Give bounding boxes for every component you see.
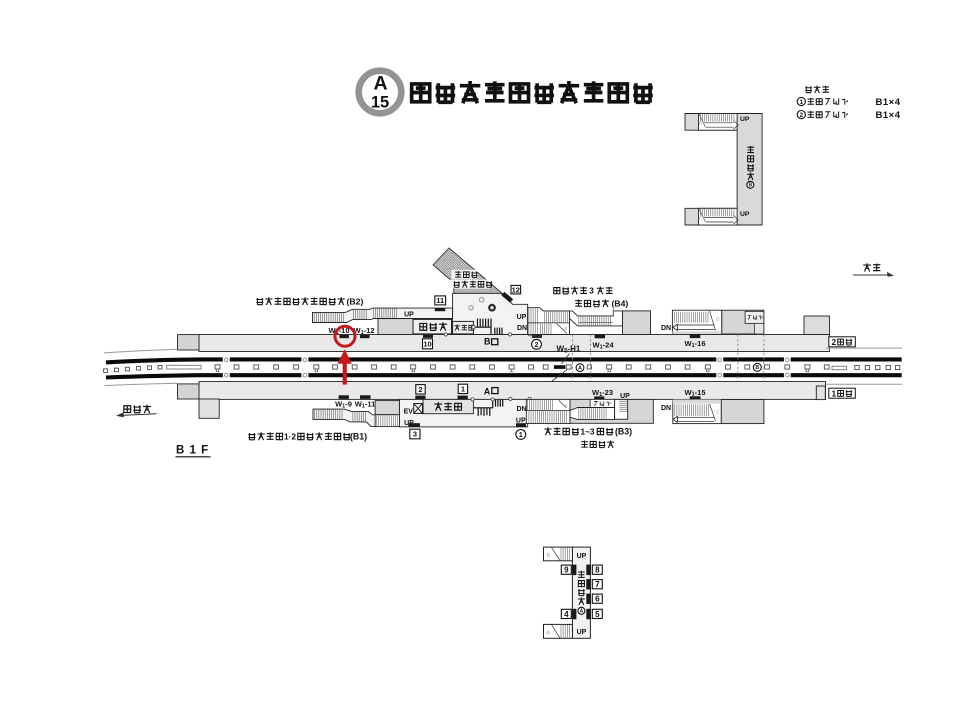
svg-text:W1-16: W1-16 — [685, 339, 706, 349]
svg-text:W1-11: W1-11 — [355, 400, 376, 410]
svg-text:A: A — [565, 403, 568, 408]
svg-text:15: 15 — [371, 94, 389, 112]
svg-text:EV: EV — [404, 409, 414, 416]
svg-text:A: A — [578, 365, 582, 371]
svg-text:A: A — [484, 386, 491, 396]
svg-text:4: 4 — [564, 610, 569, 619]
svg-text:DN: DN — [517, 325, 527, 332]
svg-text:3: 3 — [413, 430, 417, 439]
svg-text:W1-23: W1-23 — [592, 388, 613, 398]
svg-text:1: 1 — [461, 385, 465, 394]
svg-text:DN: DN — [661, 405, 671, 412]
svg-text:1·2: 1·2 — [284, 432, 296, 442]
svg-text:UP: UP — [517, 314, 527, 321]
svg-text:UP: UP — [577, 553, 587, 560]
svg-text:C: C — [716, 410, 719, 415]
svg-text:7: 7 — [595, 580, 600, 589]
svg-text:A: A — [580, 609, 584, 615]
svg-text:B: B — [564, 326, 567, 331]
svg-text:UP: UP — [620, 393, 630, 400]
svg-text:(B3): (B3) — [615, 427, 632, 437]
svg-text:W5-H1: W5-H1 — [557, 345, 581, 355]
svg-text:3: 3 — [589, 286, 594, 296]
svg-text:UP: UP — [577, 629, 587, 636]
svg-text:1: 1 — [799, 99, 803, 106]
svg-text:W1-15: W1-15 — [685, 388, 706, 398]
svg-text:W1-9: W1-9 — [335, 400, 352, 410]
svg-text:1~3: 1~3 — [580, 427, 594, 437]
svg-text:DN: DN — [661, 325, 671, 332]
svg-text:UP: UP — [740, 116, 750, 123]
svg-text:9: 9 — [564, 566, 569, 575]
svg-text:B1×4: B1×4 — [876, 110, 901, 121]
svg-text:B: B — [484, 337, 491, 347]
svg-text:(B2): (B2) — [347, 297, 364, 307]
svg-text:(B1): (B1) — [350, 432, 367, 442]
svg-text:2: 2 — [832, 338, 837, 347]
svg-text:2: 2 — [799, 112, 803, 119]
svg-text:10: 10 — [423, 340, 431, 349]
svg-text:D: D — [716, 316, 719, 321]
svg-text:W1-24: W1-24 — [593, 341, 615, 351]
svg-text:B1×4: B1×4 — [876, 97, 901, 108]
svg-text:6: 6 — [595, 595, 600, 604]
svg-text:DN: DN — [516, 406, 526, 413]
svg-text:5: 5 — [595, 610, 600, 619]
svg-text:B: B — [755, 365, 759, 371]
svg-text:2: 2 — [418, 385, 422, 394]
svg-text:UP: UP — [404, 312, 414, 319]
svg-text:8: 8 — [595, 566, 600, 575]
svg-text:A: A — [373, 73, 387, 95]
svg-text:2: 2 — [535, 342, 539, 349]
svg-text:B 1 F: B 1 F — [176, 445, 209, 457]
svg-text:UP: UP — [740, 211, 750, 218]
svg-text:1: 1 — [832, 389, 837, 398]
svg-text:B: B — [748, 183, 752, 189]
svg-text:(B4): (B4) — [612, 299, 629, 309]
svg-text:12: 12 — [512, 285, 520, 294]
svg-text:1: 1 — [519, 432, 523, 439]
svg-text:W1-12: W1-12 — [354, 326, 375, 336]
svg-text:11: 11 — [436, 296, 444, 305]
